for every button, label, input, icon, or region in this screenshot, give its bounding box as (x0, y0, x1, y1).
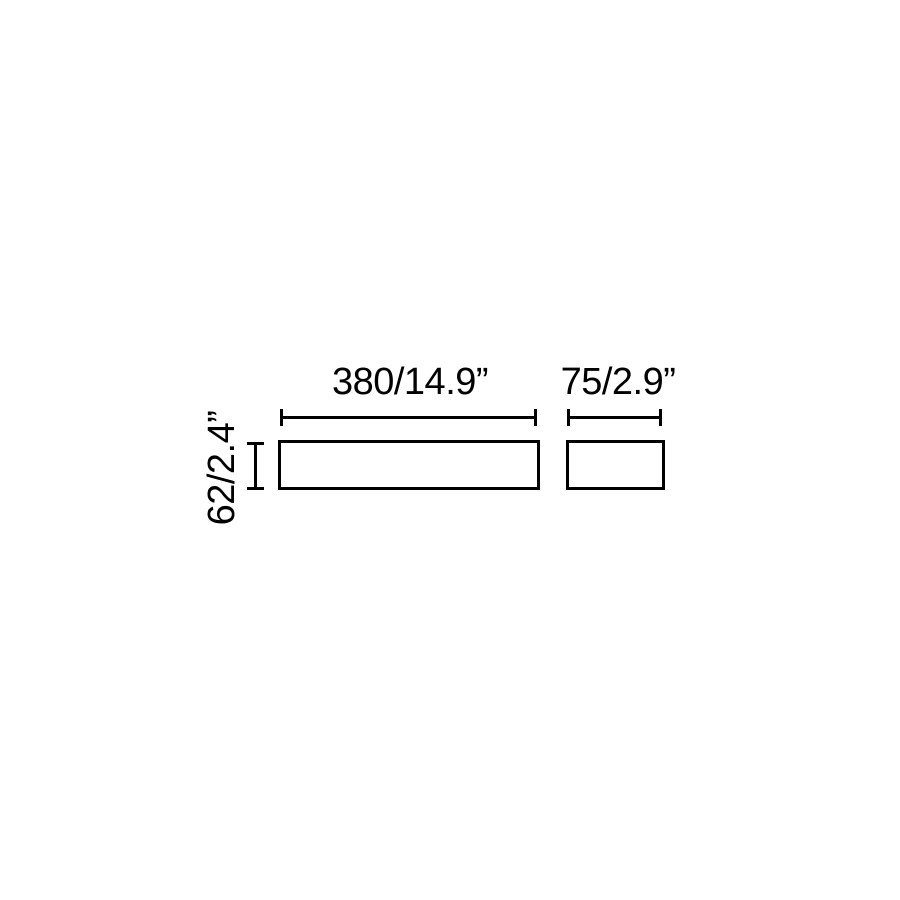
dimension-tick-right (534, 409, 537, 426)
dimension-diagram: 380/14.9” 75/2.9” 62/2.4” (0, 0, 900, 900)
front-width-dimension-label: 380/14.9” (332, 363, 488, 401)
dimension-tick-right (659, 409, 662, 426)
dimension-line-bar (280, 416, 537, 419)
front-width-dimension-line (280, 409, 537, 426)
dimension-line-bar (567, 416, 662, 419)
height-dimension-line (247, 442, 264, 490)
fixture-side-view-outline (566, 440, 665, 490)
fixture-front-view-outline (278, 440, 540, 490)
side-width-dimension-line (567, 409, 662, 426)
dimension-tick-bottom (247, 487, 264, 490)
dimension-line-bar (254, 442, 257, 490)
side-width-dimension-label: 75/2.9” (561, 363, 676, 401)
height-dimension-label: 62/2.4” (203, 411, 241, 526)
